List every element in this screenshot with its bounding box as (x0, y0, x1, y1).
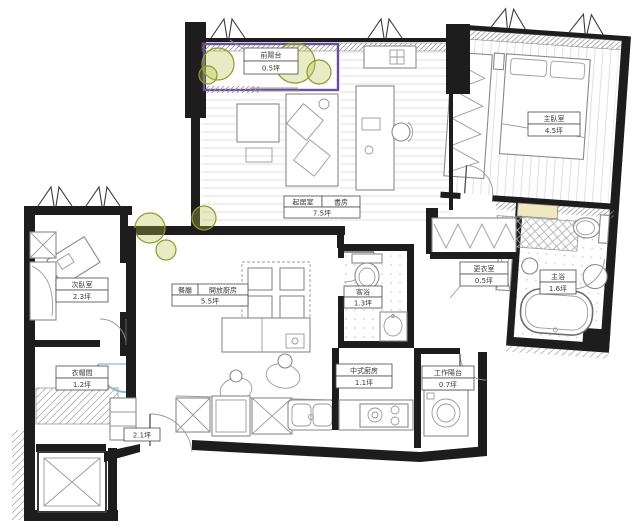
room-label-work-balcony: 工作陽台 0.7坪 (422, 366, 474, 390)
bottom-walls (104, 440, 487, 462)
room-label-foyer: 2.1坪 (124, 428, 160, 441)
living-window2-icon (368, 19, 402, 38)
room-name: 主浴 (551, 272, 565, 281)
room-label-walk-in-closet: 更衣室 0.5坪 (450, 262, 508, 298)
room-name: 客浴 (356, 288, 370, 297)
guest-bath-sink (380, 312, 407, 341)
room-label-guest-bath: 客浴 1.3坪 (344, 286, 382, 308)
work-balcony (414, 348, 487, 448)
room-label-master-bedroom: 主臥室 4.5坪 (528, 112, 580, 136)
room-label-living-study: 起居室 書房 7.5坪 (284, 196, 360, 218)
room-area: 0.7坪 (439, 381, 457, 389)
room-area: 7.5坪 (313, 210, 331, 218)
room-area: 1.1坪 (355, 379, 373, 387)
room-name: 衣帽間 (72, 368, 93, 377)
room-name: 工作陽台 (434, 368, 462, 377)
room-name: 次臥室 (72, 280, 93, 289)
dining-set (242, 262, 310, 324)
chinese-kitchen (332, 348, 421, 448)
left-window2-icon (86, 187, 120, 206)
room-name: 書房 (334, 198, 348, 207)
master-bed (499, 54, 590, 160)
nightstand (493, 53, 504, 70)
bath-corner-step (582, 328, 610, 346)
floor-plan-page: 前陽台 0.5坪 起居室 書房 7.5坪 主臥室 4.5坪 次臥室 2.3坪 餐… (0, 0, 640, 526)
shaft-box (36, 444, 106, 512)
bath-sink (521, 257, 538, 274)
room-area: 2.3坪 (73, 293, 91, 301)
room-label-dining-open-kitchen: 餐廳 開放廚房 5.5坪 (172, 284, 248, 306)
room-name: 更衣室 (474, 264, 495, 273)
room-name: 主臥室 (544, 114, 565, 123)
vanity-counter (517, 203, 558, 219)
person-figure-1 (264, 354, 302, 391)
room-area: 0.5坪 (262, 65, 280, 73)
room-label-cloakroom: 衣帽間 1.2坪 (56, 366, 108, 390)
room-label-master-bath: 主浴 1.6坪 (540, 270, 576, 294)
room-area: 2.1坪 (133, 432, 151, 440)
room-label-chinese-kitchen: 中式廚房 1.1坪 (336, 364, 392, 388)
stove (360, 404, 408, 427)
room-area: 1.3坪 (354, 300, 372, 308)
floor-plan-canvas: 前陽台 0.5坪 起居室 書房 7.5坪 主臥室 4.5坪 次臥室 2.3坪 餐… (0, 0, 640, 526)
room-area: 1.2坪 (73, 381, 91, 389)
top-cabinet (364, 46, 416, 68)
room-area: 1.6坪 (549, 285, 567, 293)
left-window-icon (38, 187, 72, 206)
living-window-icon (211, 19, 245, 38)
kitchen-counter (176, 396, 334, 436)
kitchen-island (222, 318, 310, 352)
room-name: 中式廚房 (350, 366, 378, 375)
room-name: 起居室 (293, 198, 314, 207)
room-name: 開放廚房 (209, 286, 237, 295)
room-name: 前陽台 (261, 51, 282, 60)
room-label-second-bedroom: 次臥室 2.3坪 (56, 278, 108, 302)
bedroom-window-icon (491, 8, 526, 29)
room-name: 餐廳 (178, 286, 192, 295)
bedroom-window2-icon (569, 13, 604, 34)
room-area: 4.5坪 (545, 127, 563, 135)
sofa-daybed (286, 94, 338, 186)
double-sink (288, 400, 334, 430)
room-area: 5.5坪 (201, 298, 219, 306)
washing-machine (424, 390, 468, 436)
room-area: 0.5坪 (475, 277, 493, 285)
bathtub (519, 288, 594, 337)
